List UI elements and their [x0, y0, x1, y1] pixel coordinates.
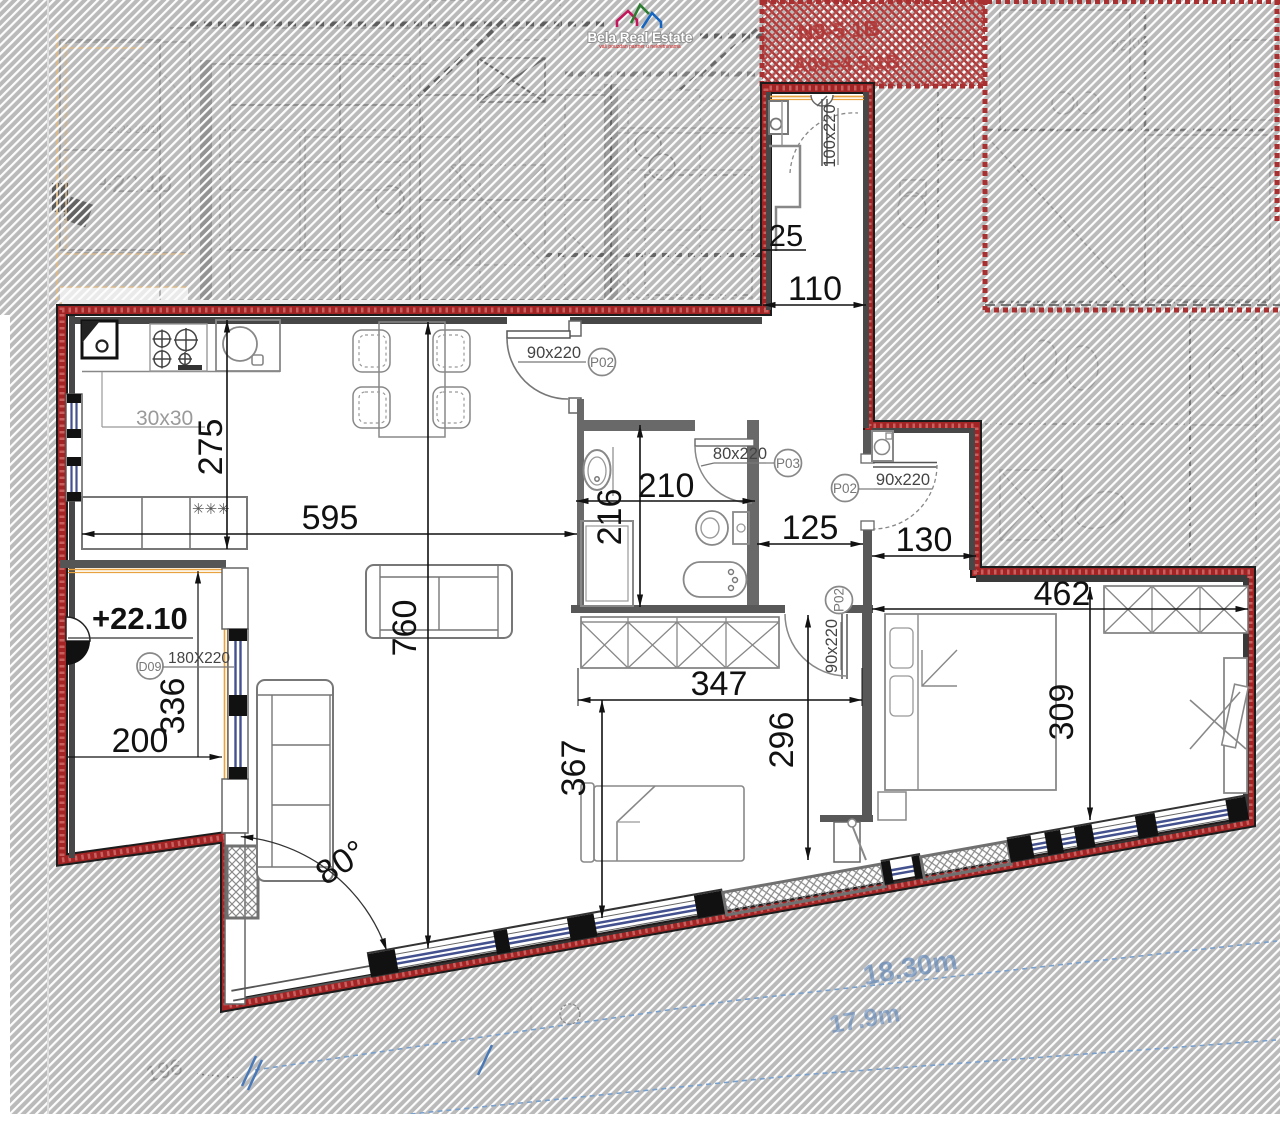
svg-text:595: 595 [302, 499, 359, 537]
svg-text:P02: P02 [833, 481, 857, 496]
svg-text:90x220: 90x220 [876, 471, 930, 489]
svg-text:180X220: 180X220 [168, 650, 230, 667]
svg-text:760: 760 [386, 600, 424, 657]
svg-text:296: 296 [763, 712, 801, 769]
svg-text:P02: P02 [832, 588, 847, 612]
svg-text:25: 25 [769, 218, 803, 253]
svg-text:130: 130 [896, 521, 953, 559]
svg-text:N9-5 1B: N9-5 1B [797, 16, 880, 45]
svg-text:P02: P02 [590, 355, 614, 370]
svg-text:+22.10: +22.10 [92, 601, 188, 636]
svg-text:80x220: 80x220 [713, 445, 767, 463]
svg-text:vaš pouzdan partner u nekretni: vaš pouzdan partner u nekretninama [599, 44, 681, 50]
svg-text:Bela Real Estate: Bela Real Estate [587, 30, 693, 45]
svg-text:309: 309 [1043, 684, 1081, 741]
svg-text:A09=4 5.1B: A09=4 5.1B [792, 51, 900, 77]
svg-text:210: 210 [638, 467, 695, 505]
svg-text:367: 367 [555, 740, 593, 797]
svg-text:125: 125 [782, 509, 839, 547]
svg-text:110: 110 [788, 270, 842, 308]
svg-text:D09: D09 [139, 660, 162, 674]
svg-text:216: 216 [591, 489, 629, 546]
svg-text:336: 336 [154, 678, 192, 735]
svg-text:462: 462 [1034, 575, 1091, 613]
svg-text:90x220: 90x220 [823, 619, 841, 673]
svg-text:90x220: 90x220 [527, 344, 581, 362]
svg-text:100x220: 100x220 [821, 104, 839, 167]
svg-text:P03: P03 [776, 456, 800, 471]
svg-text:✳✳✳: ✳✳✳ [192, 501, 230, 518]
svg-text:275: 275 [192, 419, 230, 476]
svg-text:347: 347 [691, 665, 748, 703]
svg-text:30x30: 30x30 [136, 407, 193, 430]
